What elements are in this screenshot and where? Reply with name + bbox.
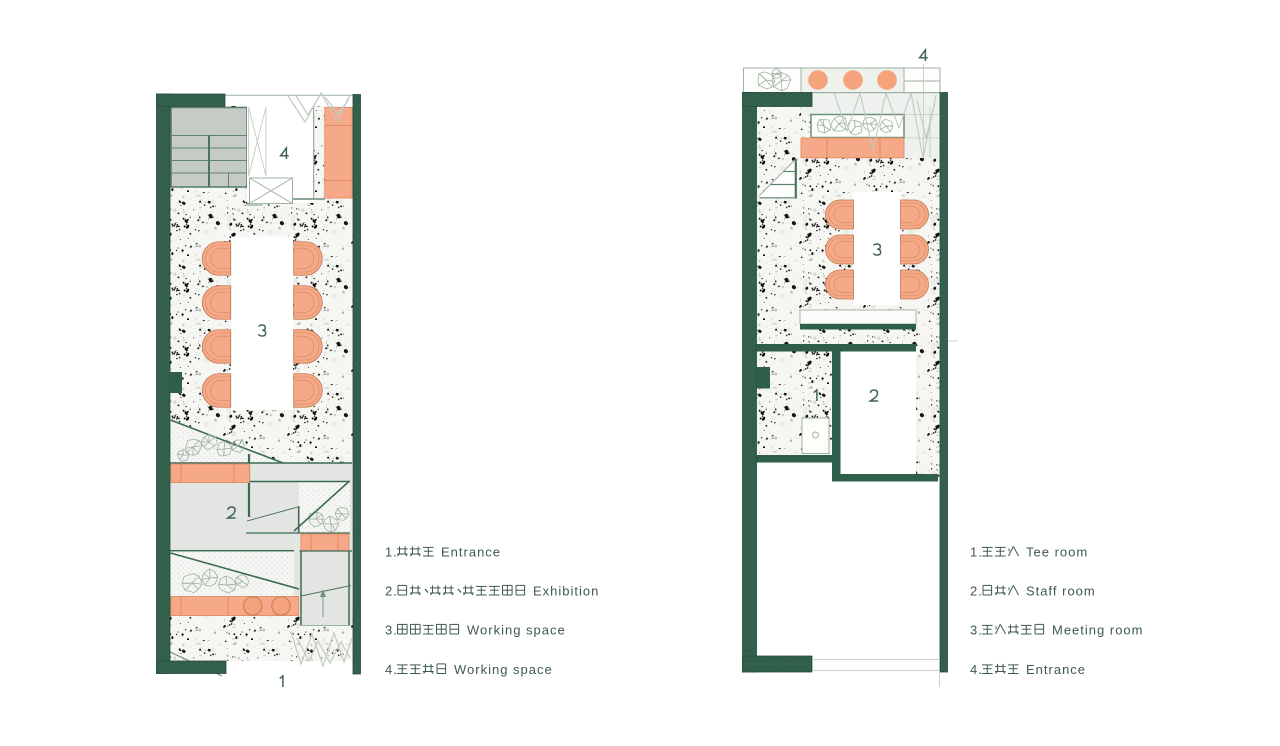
svg-text:3.: 3. xyxy=(385,623,398,638)
svg-text:Staff room: Staff room xyxy=(1026,584,1096,599)
svg-text:2.: 2. xyxy=(385,584,398,599)
svg-text:4.: 4. xyxy=(970,662,983,677)
svg-text:1.: 1. xyxy=(970,545,983,560)
svg-text:3.: 3. xyxy=(970,623,983,638)
svg-text:2.: 2. xyxy=(970,584,983,599)
svg-text:1.: 1. xyxy=(385,545,398,560)
svg-text:Entrance: Entrance xyxy=(441,545,501,560)
svg-text:4.: 4. xyxy=(385,662,398,677)
svg-text:Entrance: Entrance xyxy=(1026,662,1086,677)
svg-text:Meeting room: Meeting room xyxy=(1052,623,1143,638)
svg-text:Exhibition: Exhibition xyxy=(533,584,599,599)
svg-text:Working space: Working space xyxy=(454,662,553,677)
svg-text:Tee room: Tee room xyxy=(1026,545,1088,560)
svg-text:Working space: Working space xyxy=(467,623,566,638)
